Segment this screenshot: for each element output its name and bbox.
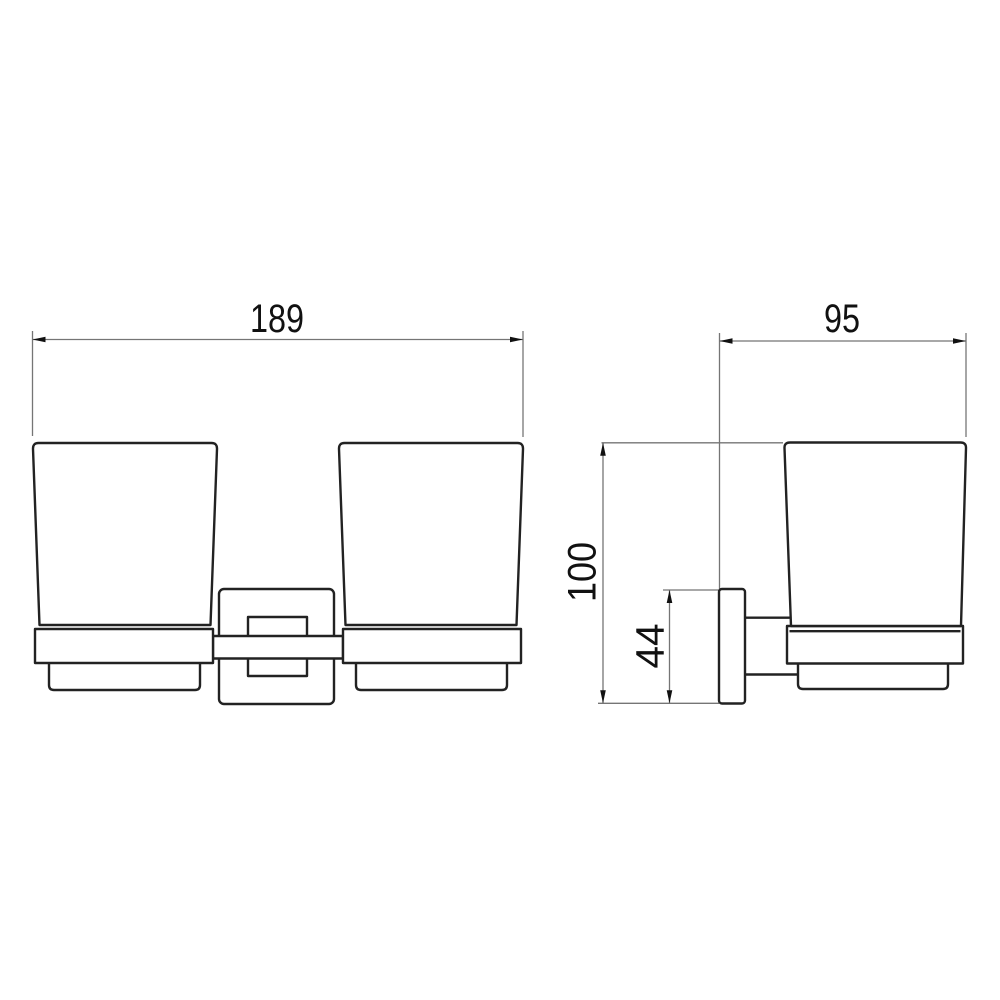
left-glass-base	[49, 660, 200, 690]
left-glass-cup	[33, 443, 217, 625]
arrowhead-right-icon	[510, 337, 523, 343]
right-holder-ring	[343, 629, 521, 663]
side-view: 95 100 44	[561, 297, 967, 704]
arrowhead-right-icon	[953, 338, 966, 344]
left-holder-ring	[35, 629, 213, 663]
bracket-height-label: 44	[629, 624, 673, 669]
side-glass-base	[798, 661, 948, 689]
cross-bar	[213, 636, 343, 659]
right-glass-base	[356, 660, 507, 690]
front-width-label: 189	[250, 297, 304, 341]
arrowhead-top-icon	[667, 590, 673, 603]
arrowhead-bottom-icon	[667, 690, 673, 703]
side-depth-label: 95	[824, 297, 860, 341]
arrowhead-left-icon	[720, 338, 733, 344]
technical-drawing-page: 189	[0, 0, 1000, 1000]
right-glass-cup	[339, 443, 523, 625]
bracket-height-dimension: 44	[629, 590, 720, 703]
arrowhead-top-icon	[600, 443, 606, 456]
height-label: 100	[561, 542, 605, 602]
arrowhead-bottom-icon	[600, 690, 606, 703]
drawing-canvas: 189	[0, 0, 1000, 1000]
front-width-dimension: 189	[33, 297, 524, 437]
front-view: 189	[33, 297, 524, 704]
wall-plate-side	[719, 589, 745, 704]
right-tumbler	[339, 443, 523, 690]
arrowhead-left-icon	[33, 337, 46, 343]
left-tumbler	[33, 443, 217, 690]
side-glass-cup	[784, 443, 966, 627]
side-product	[719, 443, 966, 704]
